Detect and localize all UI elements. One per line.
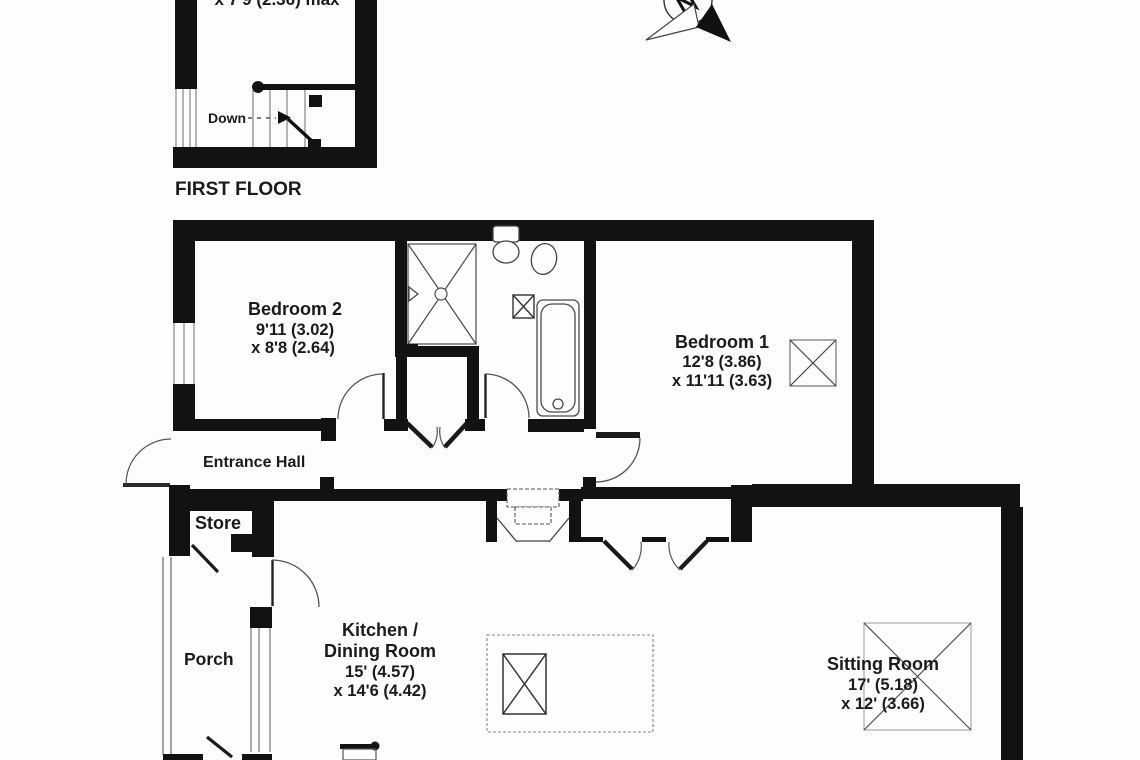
svg-text:x 11'11 (3.63): x 11'11 (3.63) [672, 372, 772, 390]
svg-text:x 14'6 (4.42): x 14'6 (4.42) [334, 682, 427, 700]
svg-text:Bedroom 1: Bedroom 1 [675, 332, 769, 352]
svg-text:FIRST FLOOR: FIRST FLOOR [175, 179, 302, 200]
svg-text:x 12' (3.66): x 12' (3.66) [841, 695, 925, 713]
svg-text:Sitting Room: Sitting Room [827, 654, 939, 674]
svg-text:9'11 (3.02): 9'11 (3.02) [256, 321, 334, 339]
svg-text:15' (4.57): 15' (4.57) [345, 663, 415, 681]
svg-text:x 8'8 (2.64): x 8'8 (2.64) [251, 339, 335, 357]
svg-text:Dining Room: Dining Room [324, 641, 436, 661]
svg-text:Down: Down [208, 110, 246, 126]
svg-text:Bedroom 2: Bedroom 2 [248, 299, 342, 319]
svg-text:x 7'9 (2.36) max: x 7'9 (2.36) max [214, 0, 340, 9]
svg-text:Entrance Hall: Entrance Hall [203, 454, 305, 471]
svg-text:12'8 (3.86): 12'8 (3.86) [682, 353, 761, 371]
svg-text:Kitchen /: Kitchen / [342, 620, 418, 640]
svg-text:Porch: Porch [184, 649, 234, 669]
svg-text:17' (5.18): 17' (5.18) [848, 676, 918, 694]
svg-text:Store: Store [195, 513, 241, 533]
